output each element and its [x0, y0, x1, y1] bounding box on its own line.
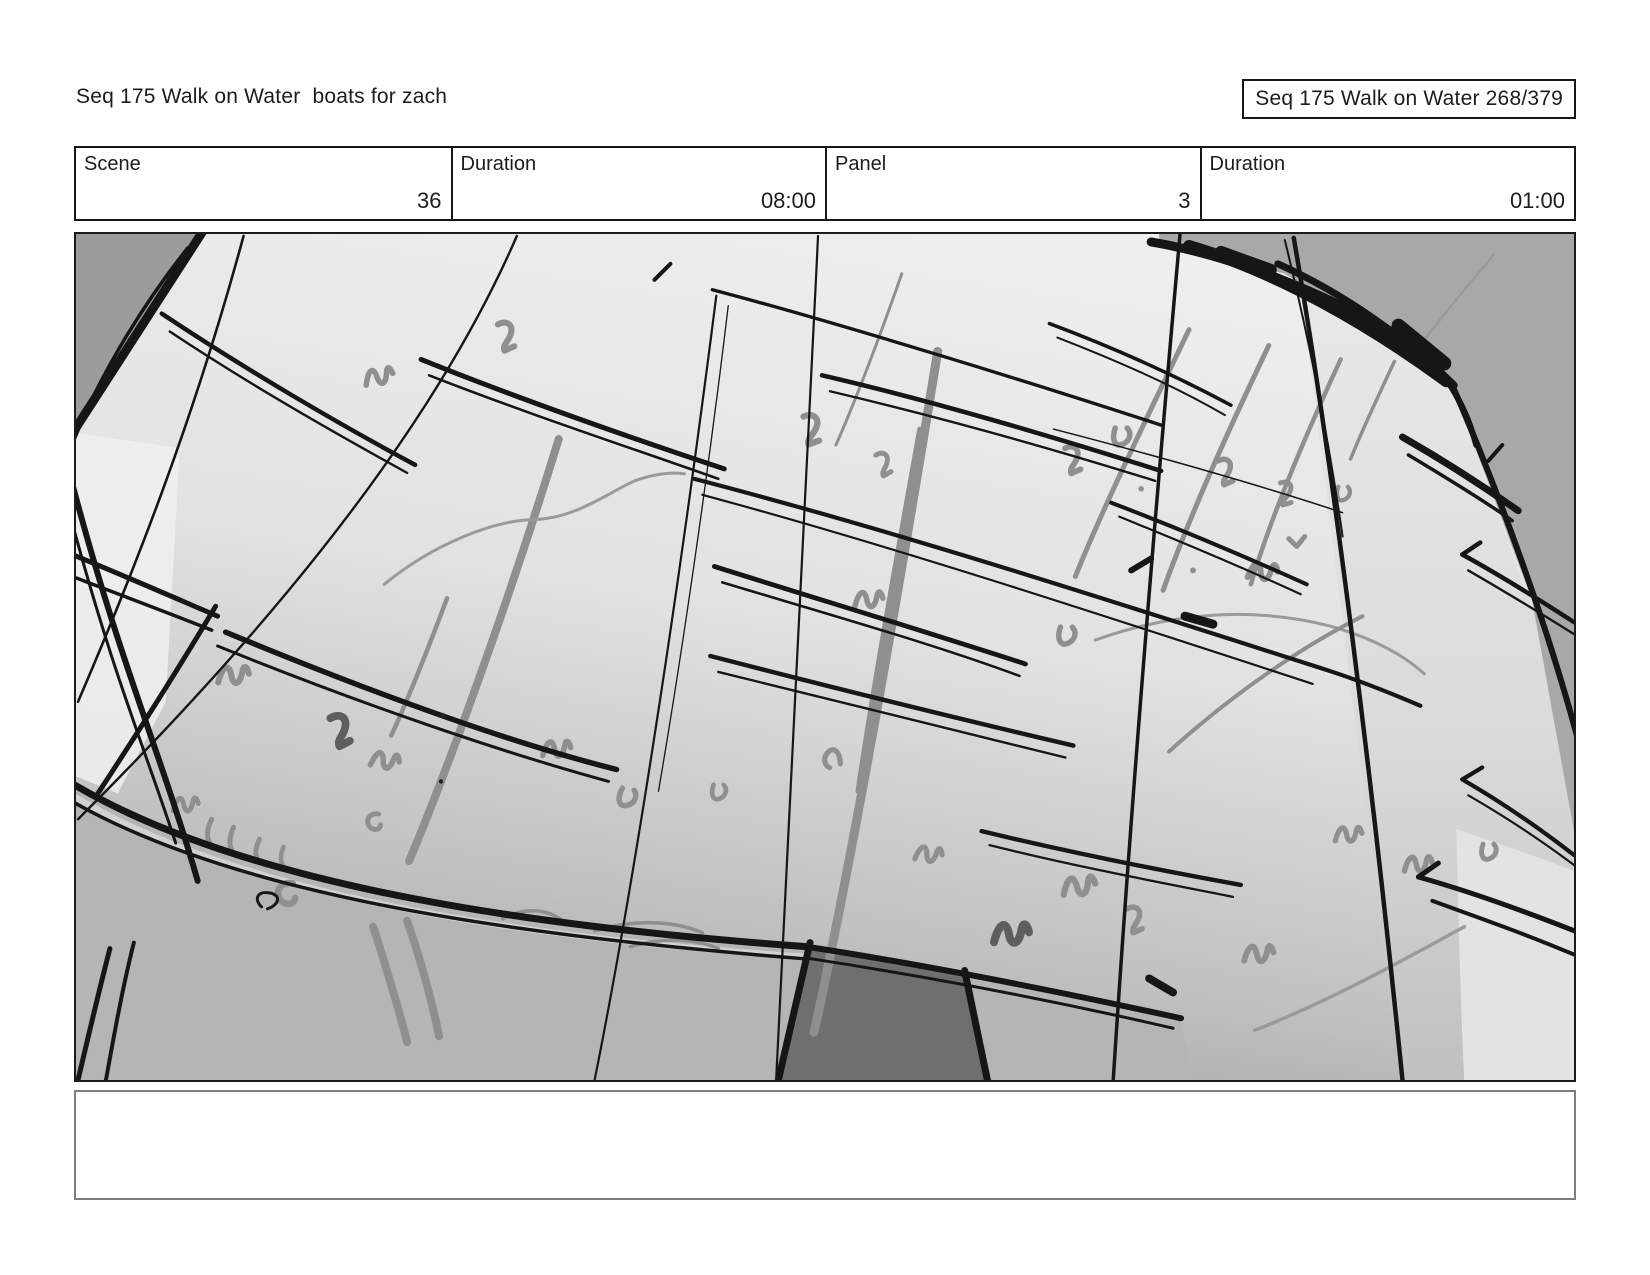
cell-scene-duration: Duration 08:00	[451, 148, 826, 219]
cell-scene: Scene 36	[76, 148, 451, 219]
sequence-page-indicator: Seq 175 Walk on Water 268/379	[1242, 79, 1576, 119]
panel-duration-label: Duration	[1210, 153, 1286, 176]
scene-duration-value: 08:00	[761, 188, 816, 214]
panel-label: Panel	[835, 153, 886, 176]
cell-panel-duration: Duration 01:00	[1200, 148, 1575, 219]
foreground-right	[1456, 829, 1574, 1080]
storyboard-panel	[74, 232, 1576, 1082]
panel-value: 3	[1178, 188, 1190, 214]
notes-box	[74, 1090, 1576, 1200]
page-title: Seq 175 Walk on Water boats for zach	[76, 85, 447, 109]
scene-value: 36	[417, 188, 441, 214]
panel-drawing	[76, 234, 1574, 1080]
scene-duration-label: Duration	[461, 153, 537, 176]
info-table: Scene 36 Duration 08:00 Panel 3 Duration…	[74, 146, 1576, 221]
panel-duration-value: 01:00	[1510, 188, 1565, 214]
cell-panel: Panel 3	[825, 148, 1200, 219]
scene-label: Scene	[84, 153, 141, 176]
